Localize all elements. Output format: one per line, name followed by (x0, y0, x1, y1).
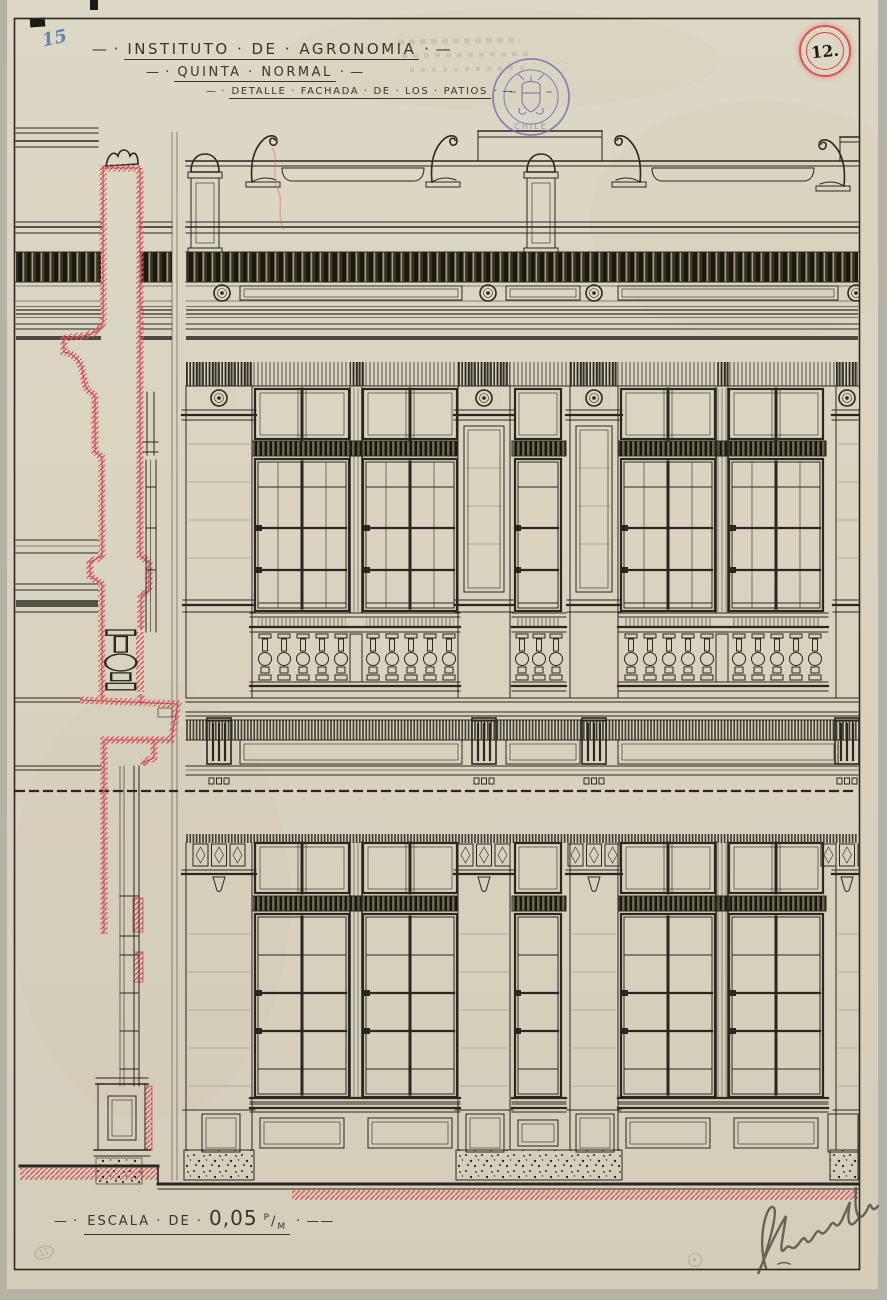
drawing-sheet: · · · · · · · · · · · CHILE · — · INSTIT… (0, 0, 887, 1300)
title-line-3: — · DETALLE · FACHADA · DE · LOS · PATIO… (206, 86, 513, 97)
scale-unit: P/M (264, 1213, 288, 1232)
scale-note: — · ESCALA · DE · 0,05 P/M · —— (54, 1206, 334, 1235)
stamp-country-text: · CHILE · (505, 122, 557, 131)
title-dash: — · (92, 40, 120, 58)
scale-label: ESCALA · DE · (87, 1214, 203, 1229)
subtitle-text: QUINTA · NORMAL (174, 65, 335, 82)
ground-hatch-red (292, 1190, 858, 1200)
title-line-1: — · INSTITUTO · DE · AGRONOMIA · — (92, 40, 452, 58)
scale-value: 0,05 (209, 1206, 258, 1230)
title-text: INSTITUTO · DE · AGRONOMIA (124, 40, 419, 60)
sheet-number: 12. (810, 40, 840, 62)
detail-title-text: DETALLE · FACHADA · DE · LOS · PATIOS (229, 86, 491, 99)
lintel-band (252, 441, 826, 456)
embossed-seal-mark (688, 1253, 702, 1267)
scan-blemish (90, 0, 98, 10)
stamp-arc-dashes: · · · · · · · · · · (492, 60, 569, 68)
title-dash: · — (424, 40, 452, 58)
sheet-number-circle: 12. (799, 25, 851, 77)
facade-elevation-drawing: · · · · · · · · · · · CHILE · (0, 0, 887, 1300)
title-line-2: — · QUINTA · NORMAL · — (146, 65, 364, 80)
sheet-number-inner-ring: 12. (806, 32, 844, 70)
